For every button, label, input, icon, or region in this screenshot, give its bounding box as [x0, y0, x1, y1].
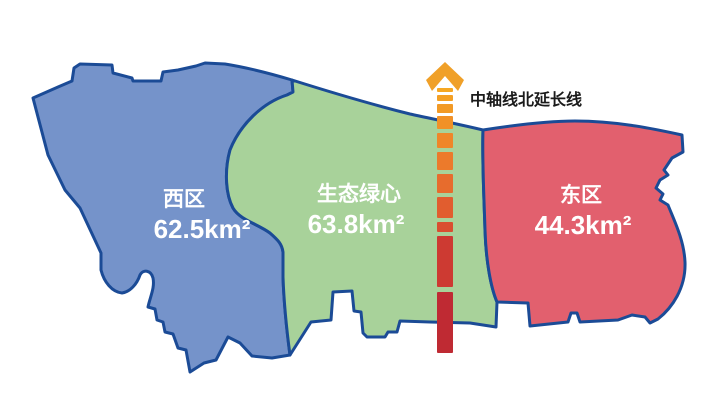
axis-dash-segment — [437, 104, 453, 113]
region-west-name: 西区 — [163, 188, 205, 211]
region-center-area: 63.8km² — [308, 209, 405, 239]
map-canvas: 中轴线北延长线 西区 62.5km² 生态绿心 63.8km² 东区 44.3k… — [0, 0, 718, 407]
axis-dash-segment — [437, 88, 453, 92]
axis-dash-segment — [437, 133, 453, 148]
axis-dash-segment — [437, 116, 453, 129]
planning-map: 中轴线北延长线 西区 62.5km² 生态绿心 63.8km² 东区 44.3k… — [0, 0, 718, 407]
region-east-name: 东区 — [560, 183, 602, 207]
axis-dash-segment — [437, 174, 453, 193]
region-west-area: 62.5km² — [154, 214, 251, 244]
axis-arrow-up-icon — [426, 62, 464, 91]
axis-dash-segment — [437, 152, 453, 170]
axis-label: 中轴线北延长线 — [470, 90, 582, 109]
axis-dash-segment — [437, 222, 453, 232]
region-east-area: 44.3km² — [535, 210, 632, 240]
axis-dash-segment — [437, 95, 453, 101]
region-center-name: 生态绿心 — [317, 182, 401, 206]
axis-dash-segment — [437, 236, 453, 287]
axis-dash-segment — [437, 292, 453, 353]
axis-dash-segment — [437, 197, 453, 218]
